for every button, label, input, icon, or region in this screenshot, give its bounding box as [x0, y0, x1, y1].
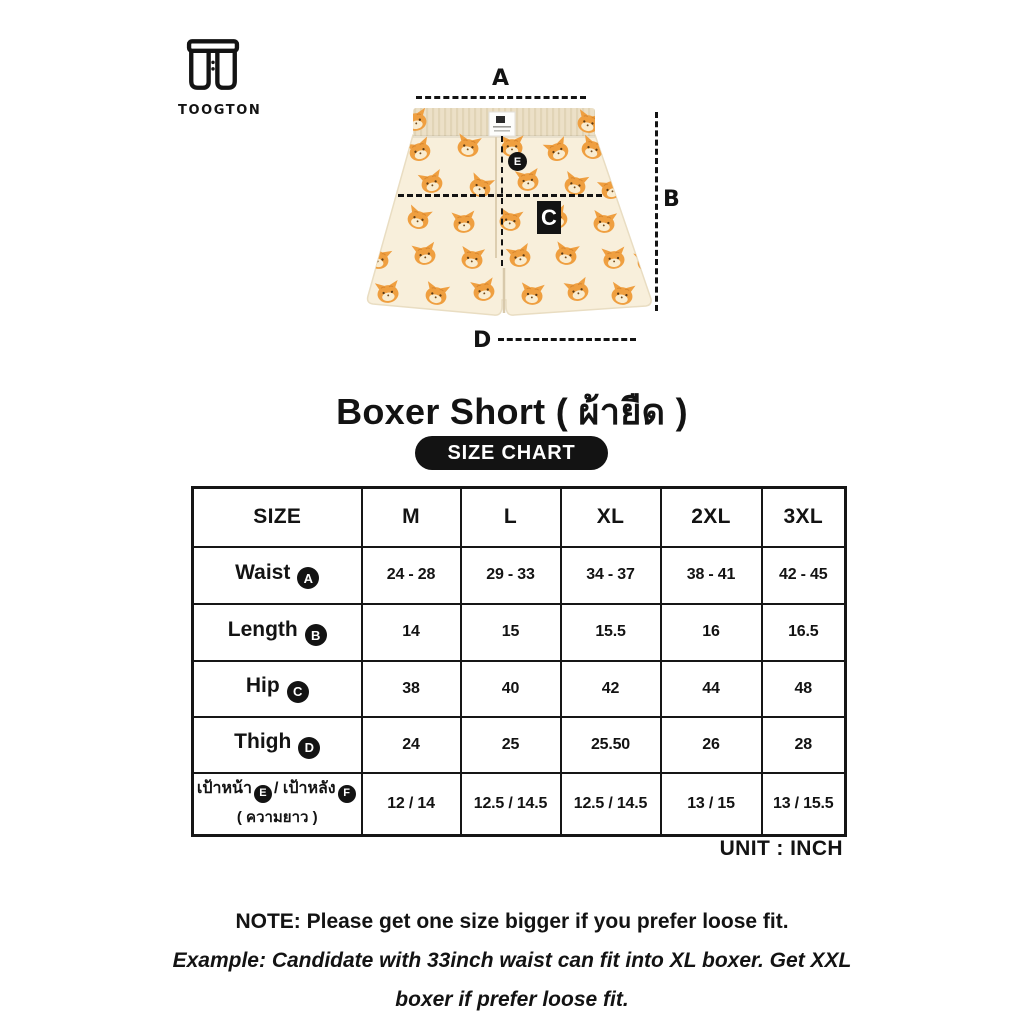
boxer-short-product-image — [350, 100, 662, 330]
table-row-hip: HipC 38 40 42 44 48 — [193, 661, 846, 717]
measure-c-label: C — [537, 201, 561, 234]
row-label-waist: WaistA — [193, 547, 362, 604]
col-m: M — [362, 488, 461, 547]
measure-b-line — [655, 112, 658, 311]
boxer-shorts-icon — [184, 36, 242, 96]
badge-c: C — [287, 681, 309, 703]
measure-d-label: D — [473, 330, 491, 352]
size-chart-badge: SIZE CHART — [415, 436, 608, 470]
table-cell: 42 - 45 — [762, 547, 846, 604]
table-cell: 25 — [461, 717, 561, 773]
unit-label: UNIT : INCH — [443, 837, 843, 861]
col-3xl: 3XL — [762, 488, 846, 547]
measure-a-label: A — [492, 68, 509, 90]
measure-a-line — [416, 96, 586, 99]
table-cell: 48 — [762, 661, 846, 717]
brand-logo: TOOGTON — [178, 36, 248, 118]
measure-e-label: E — [508, 152, 527, 171]
table-cell: 13 / 15.5 — [762, 773, 846, 836]
col-xl: XL — [561, 488, 661, 547]
badge-f: F — [338, 785, 356, 803]
table-header-row: SIZE M L XL 2XL 3XL — [193, 488, 846, 547]
measure-d-line — [498, 338, 636, 341]
table-cell: 38 — [362, 661, 461, 717]
table-cell: 24 — [362, 717, 461, 773]
table-cell: 40 — [461, 661, 561, 717]
row-label-crotch: เป้าหน้าE/ เป้าหลังF ( ความยาว ) — [193, 773, 362, 836]
table-cell: 34 - 37 — [561, 547, 661, 604]
note-block: NOTE: Please get one size bigger if you … — [32, 903, 992, 1020]
table-cell: 29 - 33 — [461, 547, 561, 604]
badge-a: A — [297, 567, 319, 589]
badge-b: B — [305, 624, 327, 646]
table-row-waist: WaistA 24 - 28 29 - 33 34 - 37 38 - 41 4… — [193, 547, 846, 604]
table-row-thigh: ThighD 24 25 25.50 26 28 — [193, 717, 846, 773]
size-chart-table: SIZE M L XL 2XL 3XL WaistA 24 - 28 29 - … — [191, 486, 847, 837]
badge-d: D — [298, 737, 320, 759]
note-line-3: boxer if prefer loose fit. — [32, 981, 992, 1020]
table-cell: 28 — [762, 717, 846, 773]
table-cell: 44 — [661, 661, 762, 717]
note-line-1: NOTE: Please get one size bigger if you … — [32, 903, 992, 942]
measure-b-label: B — [663, 189, 680, 211]
waistband-label — [489, 112, 515, 136]
brand-name: TOOGTON — [178, 103, 248, 118]
table-cell: 24 - 28 — [362, 547, 461, 604]
row-label-thigh: ThighD — [193, 717, 362, 773]
table-cell: 42 — [561, 661, 661, 717]
measure-e-line — [501, 136, 503, 266]
badge-e: E — [254, 785, 272, 803]
col-l: L — [461, 488, 561, 547]
table-row-length: LengthB 14 15 15.5 16 16.5 — [193, 604, 846, 661]
table-cell: 26 — [661, 717, 762, 773]
table-cell: 14 — [362, 604, 461, 661]
table-row-crotch: เป้าหน้าE/ เป้าหลังF ( ความยาว ) 12 / 14… — [193, 773, 846, 836]
table-cell: 12.5 / 14.5 — [461, 773, 561, 836]
table-cell: 12.5 / 14.5 — [561, 773, 661, 836]
table-cell: 13 / 15 — [661, 773, 762, 836]
table-cell: 16 — [661, 604, 762, 661]
table-cell: 16.5 — [762, 604, 846, 661]
col-2xl: 2XL — [661, 488, 762, 547]
row-label-length: LengthB — [193, 604, 362, 661]
measure-c-line — [398, 194, 602, 197]
table-cell: 38 - 41 — [661, 547, 762, 604]
product-title: Boxer Short ( ผ้ายืด ) — [0, 383, 1024, 440]
table-cell: 15.5 — [561, 604, 661, 661]
row-label-hip: HipC — [193, 661, 362, 717]
table-cell: 12 / 14 — [362, 773, 461, 836]
note-line-2: Example: Candidate with 33inch waist can… — [32, 942, 992, 981]
table-cell: 15 — [461, 604, 561, 661]
table-cell: 25.50 — [561, 717, 661, 773]
row-label-crotch-sub: ( ความยาว ) — [194, 805, 361, 829]
col-size: SIZE — [193, 488, 362, 547]
